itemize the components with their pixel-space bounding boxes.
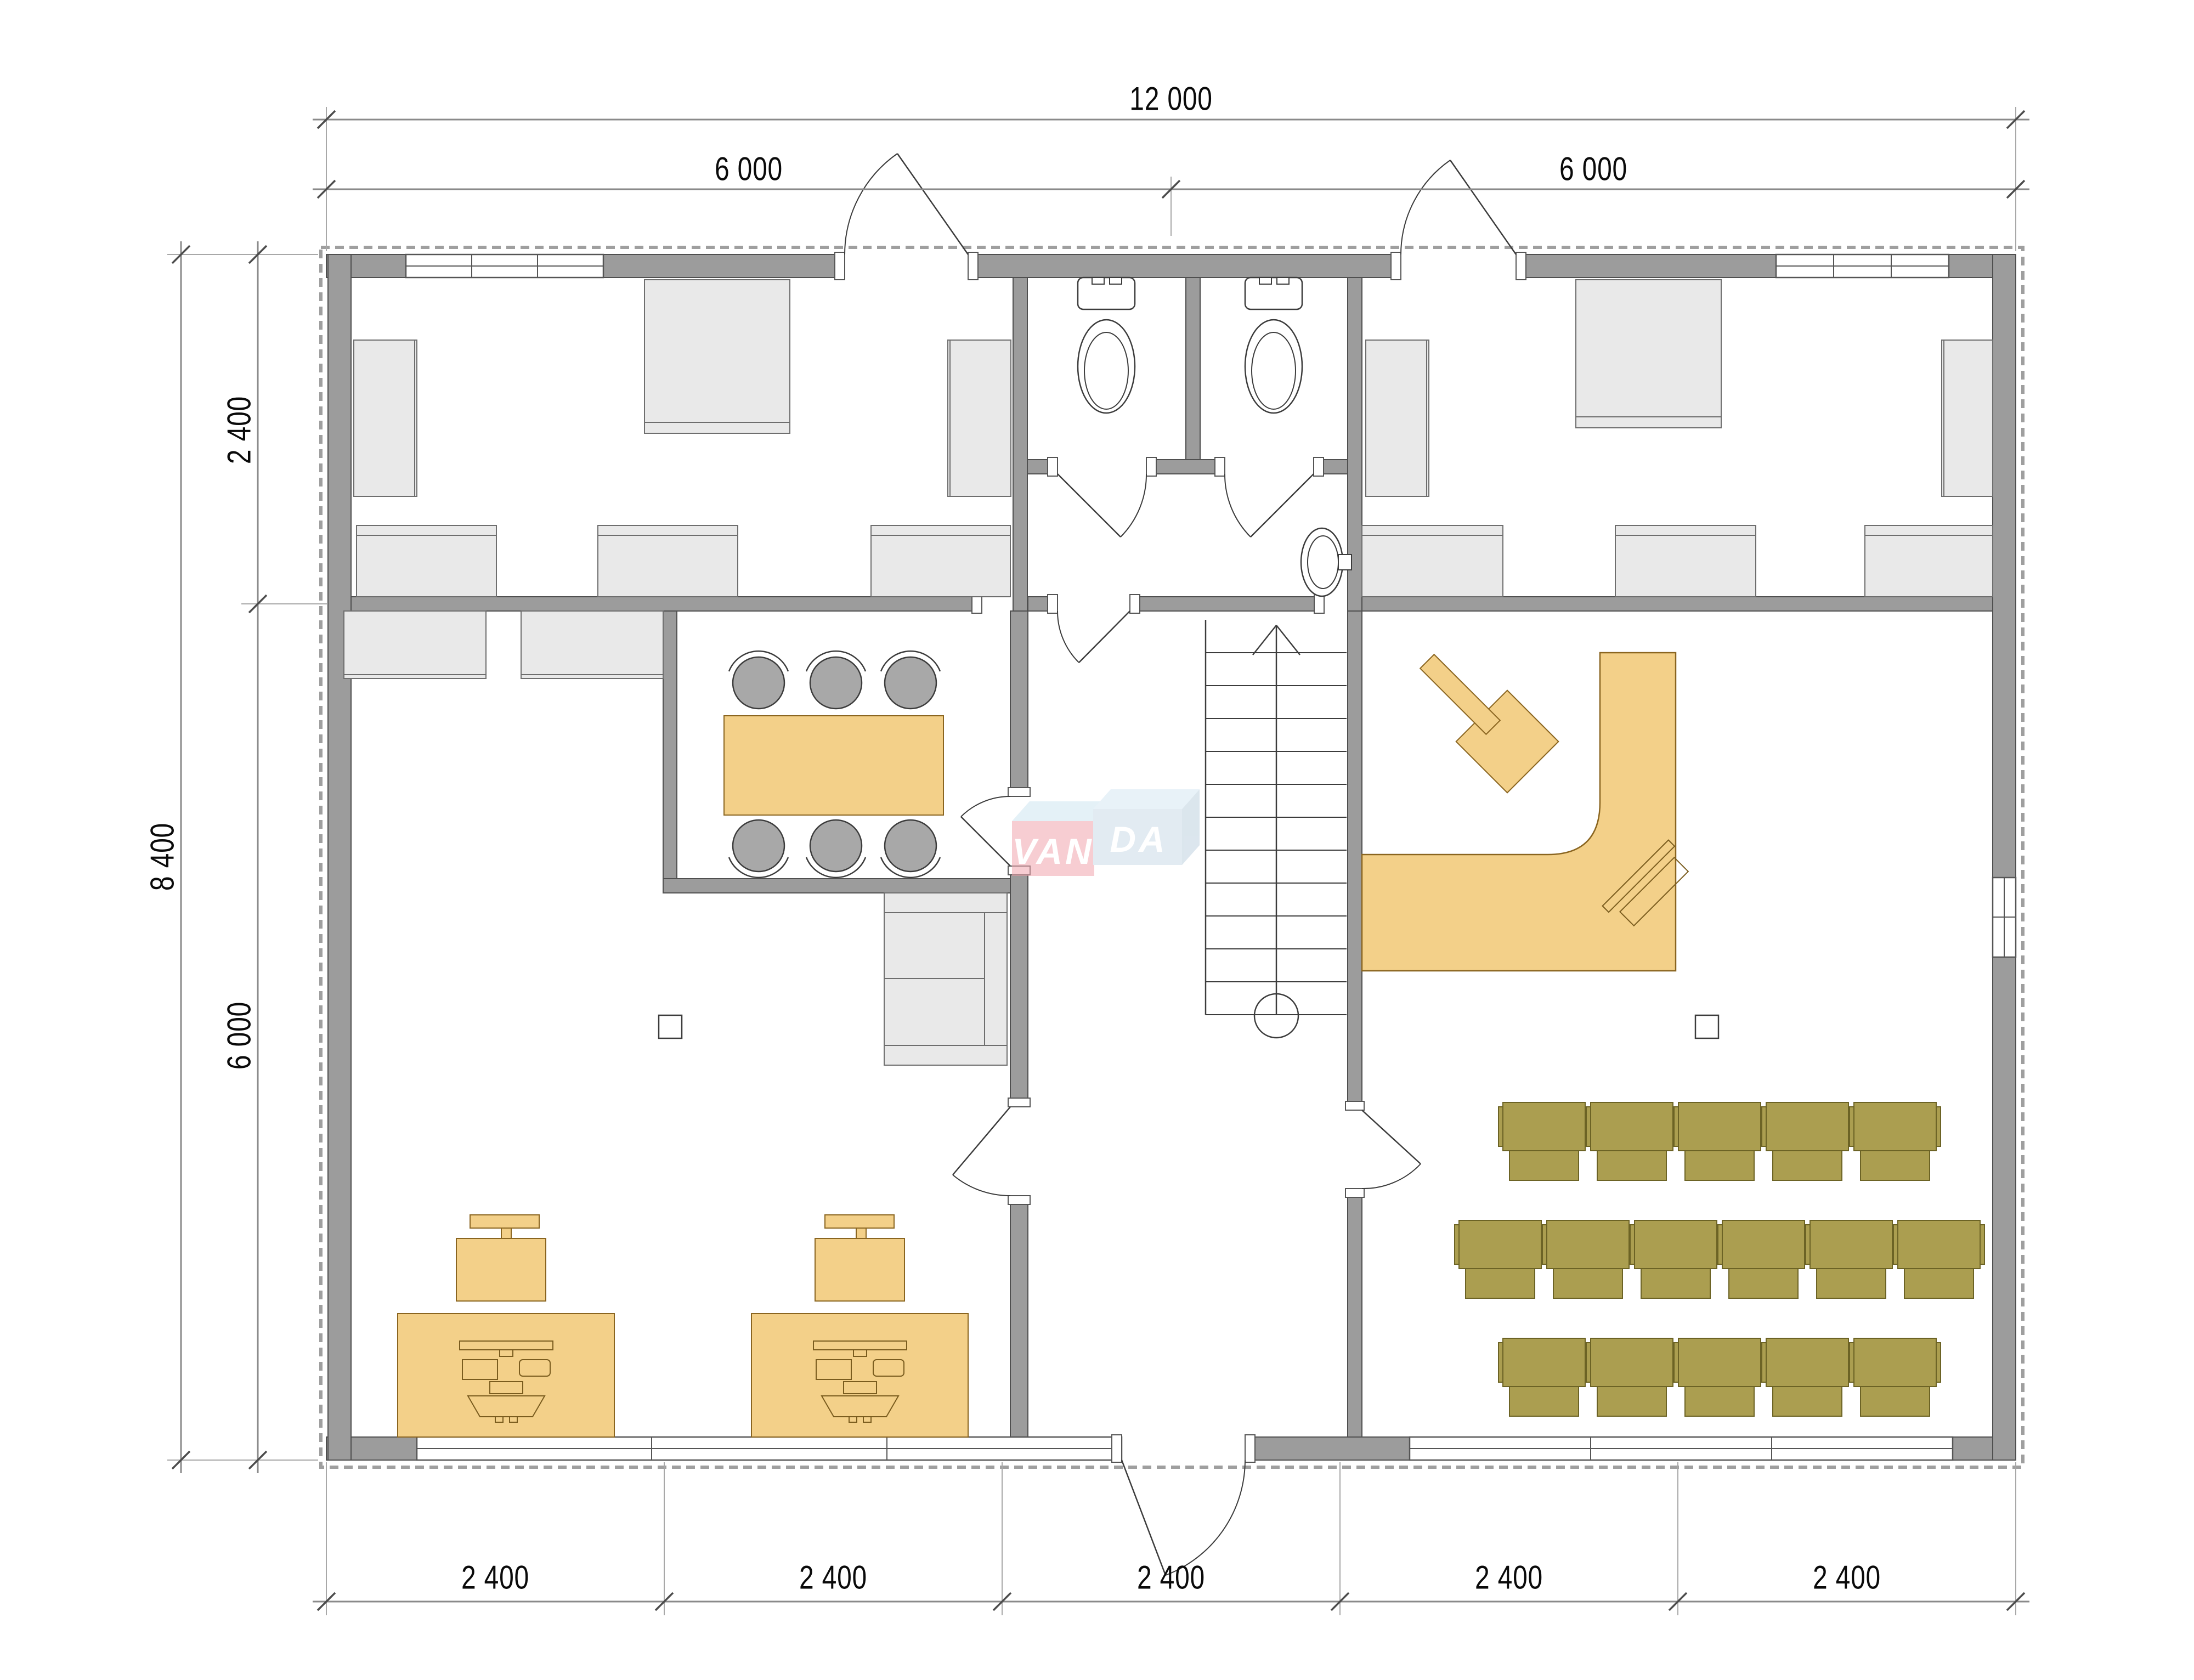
meeting-chair: [810, 657, 862, 709]
auditorium-chair-seat: [1685, 1151, 1754, 1180]
wall: [1010, 866, 1028, 1107]
toilet-tank: [1245, 278, 1302, 309]
door-jamb: [1048, 457, 1058, 476]
door-leaf: [897, 154, 968, 254]
toilet-button: [1277, 278, 1289, 284]
meeting-chair: [885, 657, 936, 709]
auditorium-chair-back: [1810, 1220, 1892, 1269]
desk: [871, 525, 1010, 597]
office-chair-seat: [815, 1238, 904, 1301]
door-swing-arc: [953, 1175, 1010, 1196]
stair-up-arrow: [1253, 625, 1276, 655]
wall: [1362, 597, 1993, 611]
office-chair-seat: [456, 1238, 546, 1301]
auditorium-chair-seat: [1729, 1269, 1798, 1298]
toilet-bowl: [1245, 320, 1302, 413]
auditorium-chair-seat: [1861, 1151, 1930, 1180]
meeting-chair: [810, 820, 862, 872]
door-swing-arc: [1225, 474, 1251, 537]
door-jamb: [972, 595, 982, 613]
door-swing-arc: [1058, 611, 1079, 663]
door-jamb: [835, 252, 845, 280]
wall: [1146, 460, 1225, 474]
wall: [351, 597, 982, 611]
toilet-button: [1110, 278, 1122, 284]
door-jamb: [1008, 1098, 1030, 1107]
reception-desk: [1362, 653, 1676, 971]
floor-plan-drawing: VAN DA: [0, 0, 2194, 1680]
auditorium-chair-back: [1459, 1220, 1541, 1269]
reception-chair: [1420, 654, 1500, 734]
door-jamb: [1112, 1435, 1122, 1462]
dim-top-total: 12 000: [1129, 80, 1213, 118]
door-jamb: [1008, 788, 1030, 796]
office-chair-back: [470, 1215, 539, 1228]
wall: [1993, 957, 2016, 1460]
meeting-table: [724, 716, 943, 815]
auditorium-chair-back: [1547, 1220, 1629, 1269]
auditorium-chair-back: [1591, 1102, 1673, 1151]
wall: [1993, 254, 2016, 878]
door-leaf: [1450, 160, 1516, 254]
door-swing-arc: [961, 796, 1010, 817]
door-swing-arc: [845, 154, 897, 254]
meeting-chair: [733, 657, 784, 709]
door-jamb: [1215, 457, 1225, 476]
dim-bottom-1: 2 400: [461, 1559, 529, 1597]
wall: [1186, 278, 1200, 474]
meeting-chair: [733, 820, 784, 872]
auditorium-chair-back: [1678, 1338, 1761, 1387]
door-leaf: [1058, 474, 1121, 537]
auditorium-chair-seat: [1509, 1151, 1579, 1180]
auditorium-chair-seat: [1904, 1269, 1974, 1298]
dim-bottom-2: 2 400: [799, 1559, 867, 1597]
desk: [354, 340, 417, 496]
watermark-box-top-face: [1093, 789, 1200, 809]
wall: [1348, 611, 1362, 1110]
auditorium-chair-seat: [1817, 1269, 1886, 1298]
auditorium-chair-back: [1854, 1102, 1936, 1151]
auditorium-chair-back: [1678, 1102, 1761, 1151]
wall: [663, 611, 677, 893]
door-jamb: [1345, 1101, 1364, 1110]
watermark-text: VAN: [1012, 831, 1094, 872]
desk: [1366, 340, 1429, 496]
sink-faucet: [1338, 555, 1352, 570]
office-chair-back: [825, 1215, 894, 1228]
wall: [1130, 597, 1324, 611]
auditorium-chair-seat: [1466, 1269, 1535, 1298]
wall: [663, 879, 1010, 893]
door-jamb: [1048, 595, 1058, 613]
auditorium-chair-seat: [1597, 1151, 1666, 1180]
door-leaf: [1122, 1460, 1166, 1575]
wall: [1010, 611, 1028, 796]
wall: [1010, 1196, 1028, 1437]
wall: [1516, 254, 1776, 278]
auditorium-chair-back: [1722, 1220, 1805, 1269]
dim-top-right-half: 6 000: [1559, 150, 1627, 188]
auditorium-chair-back: [1635, 1220, 1717, 1269]
desk: [344, 611, 486, 678]
door-leaf: [1251, 474, 1314, 537]
toilet-bowl: [1078, 320, 1135, 413]
desk: [1576, 280, 1721, 428]
door-jamb: [1146, 457, 1156, 476]
dim-left-lower: 6 000: [220, 1002, 258, 1070]
wall: [968, 254, 1401, 278]
door-swing-arc: [1121, 474, 1146, 537]
wall: [328, 254, 351, 1460]
floor-plan-page: VAN DA 12 000 6 000 6 000 8 400 2 400 6 …: [0, 0, 2194, 1680]
door-leaf: [953, 1107, 1010, 1175]
workstation-desk: [398, 1314, 614, 1437]
door-jamb: [1391, 252, 1401, 280]
door-jamb: [1245, 1435, 1255, 1462]
door-leaf: [961, 817, 1010, 866]
auditorium-chair-back: [1503, 1102, 1585, 1151]
door-jamb: [1130, 595, 1140, 613]
column-mark: [659, 1015, 682, 1038]
desk: [644, 280, 790, 433]
dim-bottom-3: 2 400: [1137, 1559, 1205, 1597]
vanda-watermark: VAN DA: [1012, 789, 1200, 876]
auditorium-chair-seat: [1553, 1269, 1622, 1298]
auditorium-chair-seat: [1861, 1387, 1930, 1416]
toilet-button: [1092, 278, 1104, 284]
wall: [1245, 1437, 1410, 1460]
wall: [603, 254, 845, 278]
door-swing-arc: [1401, 160, 1450, 254]
auditorium-chair-back: [1591, 1338, 1673, 1387]
meeting-chair: [885, 820, 936, 872]
wall: [1348, 1189, 1362, 1437]
auditorium-chair-back: [1503, 1338, 1585, 1387]
workstation-desk: [751, 1314, 968, 1437]
door-jamb: [968, 252, 978, 280]
desk: [1865, 525, 1993, 597]
door-jamb: [1345, 1189, 1364, 1197]
dim-left-upper: 2 400: [220, 396, 258, 464]
stair-up-arrow: [1276, 625, 1300, 655]
auditorium-chair-seat: [1773, 1387, 1842, 1416]
desk: [948, 340, 1011, 496]
auditorium-chair-back: [1766, 1102, 1848, 1151]
toilet-tank: [1078, 278, 1135, 309]
dim-bottom-4: 2 400: [1475, 1559, 1543, 1597]
door-jamb: [1314, 457, 1324, 476]
auditorium-chair-seat: [1509, 1387, 1579, 1416]
column-mark: [1695, 1015, 1718, 1038]
watermark-text: DA: [1110, 819, 1167, 859]
auditorium-chair-back: [1854, 1338, 1936, 1387]
dim-top-left-half: 6 000: [715, 150, 783, 188]
desk: [1942, 340, 1993, 496]
auditorium-chair-back: [1898, 1220, 1980, 1269]
wall: [1013, 278, 1027, 611]
desk: [1362, 525, 1503, 597]
desk: [521, 611, 663, 678]
desk: [598, 525, 738, 597]
door-leaf: [1362, 1110, 1421, 1164]
auditorium-chair-back: [1766, 1338, 1848, 1387]
door-jamb: [1314, 595, 1324, 613]
toilet-button: [1259, 278, 1271, 284]
door-swing-arc: [1166, 1460, 1245, 1575]
door-leaf: [1079, 611, 1130, 663]
door-swing-arc: [1362, 1164, 1421, 1189]
desk: [357, 525, 496, 597]
auditorium-chair-seat: [1685, 1387, 1754, 1416]
auditorium-chair-seat: [1597, 1387, 1666, 1416]
desk: [1615, 525, 1756, 597]
door-jamb: [1008, 1196, 1030, 1204]
dim-bottom-5: 2 400: [1813, 1559, 1881, 1597]
door-jamb: [1516, 252, 1526, 280]
auditorium-chair-seat: [1773, 1151, 1842, 1180]
dim-left-total: 8 400: [144, 823, 182, 891]
auditorium-chair-seat: [1641, 1269, 1710, 1298]
